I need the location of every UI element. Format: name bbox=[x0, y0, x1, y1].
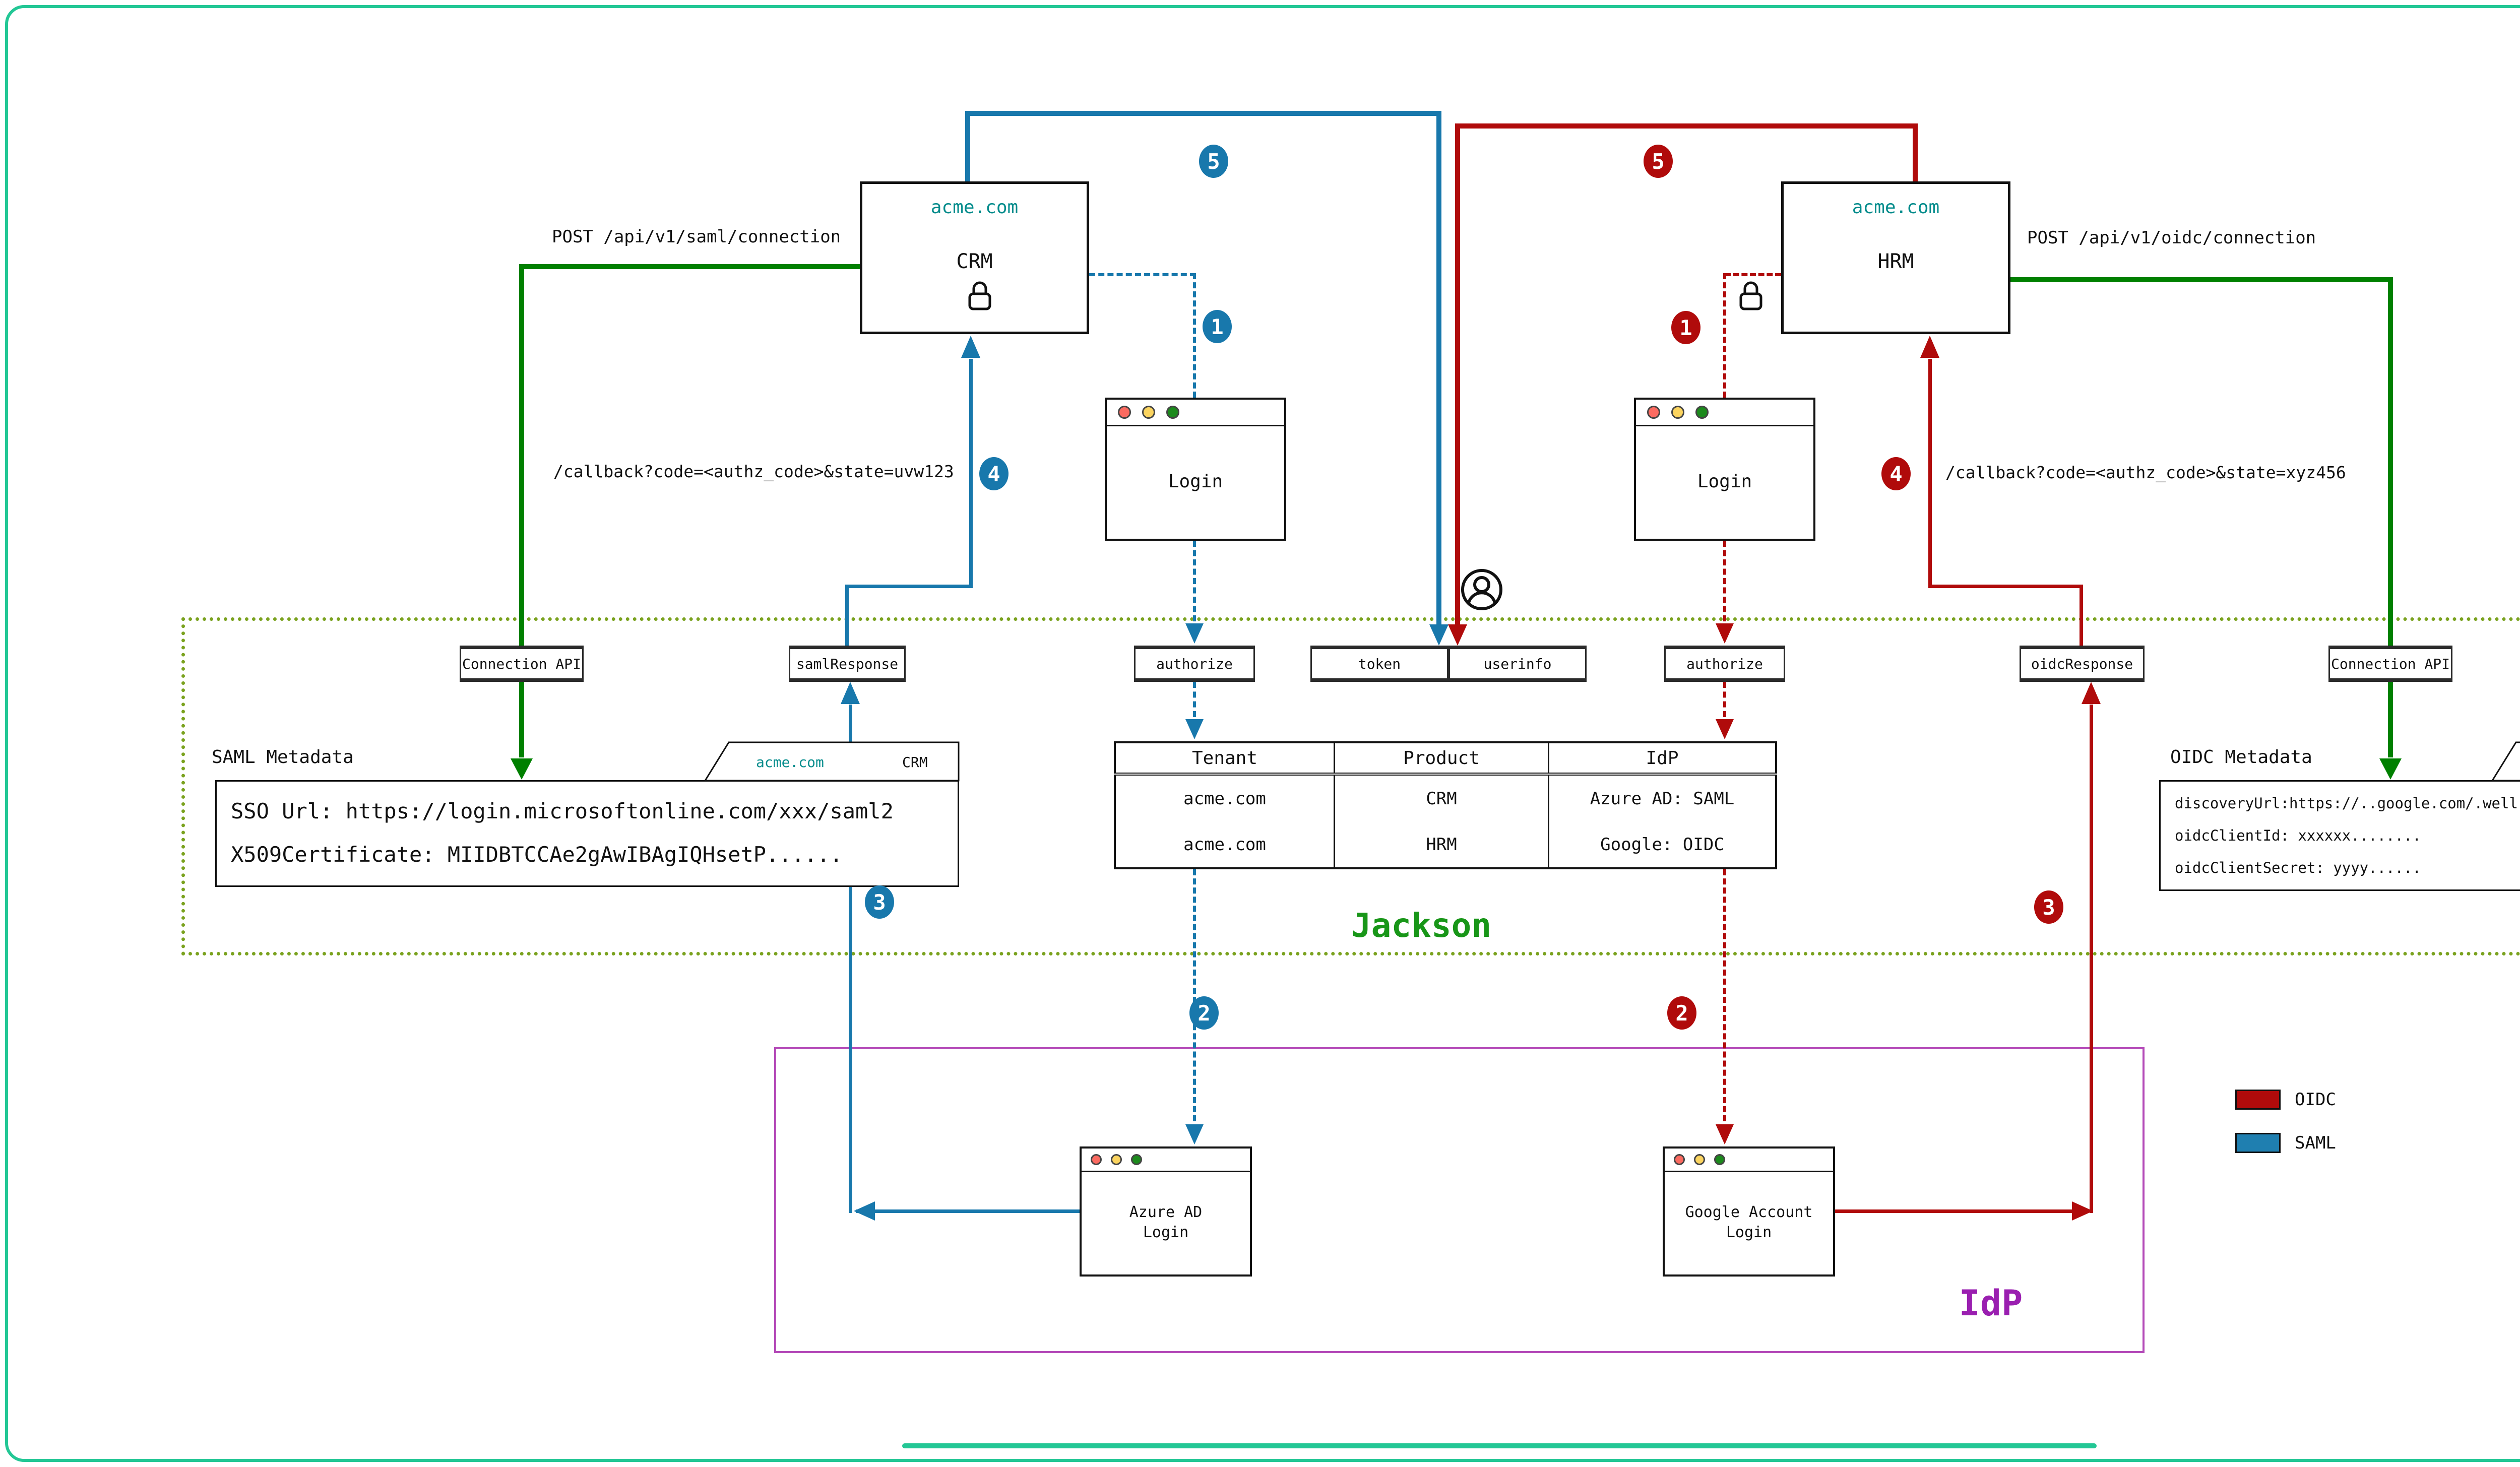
saml-dash-crm-h bbox=[1089, 273, 1196, 276]
oidc-step5-arrow bbox=[1448, 624, 1467, 646]
table-header-idp: IdP bbox=[1549, 742, 1777, 774]
saml-dash-arrow-azure bbox=[1185, 1124, 1204, 1144]
close-dot-icon[interactable] bbox=[1674, 1154, 1685, 1165]
saml-dash-arrow-table bbox=[1185, 719, 1204, 739]
endpoint-label: token bbox=[1358, 656, 1401, 672]
saml-dash-arrow-authorize bbox=[1185, 623, 1204, 644]
cell-idp: Azure AD: SAML bbox=[1549, 774, 1777, 822]
google-login-window: Google Account Login bbox=[1663, 1146, 1835, 1277]
endpoint-label: oidcResponse bbox=[2031, 656, 2133, 672]
oidc-step1-badge: 1 bbox=[1671, 311, 1700, 344]
saml-callback-label: /callback?code=<authz_code>&state=uvw123 bbox=[553, 462, 954, 481]
minimize-dot-icon[interactable] bbox=[1671, 406, 1684, 419]
oidc-discovery-url: discoveryUrl:https://..google.com/.well-… bbox=[2175, 795, 2520, 812]
maximize-dot-icon[interactable] bbox=[1714, 1154, 1725, 1165]
green-line-right-h bbox=[2010, 277, 2393, 282]
azure-label-line1: Azure AD bbox=[1129, 1202, 1203, 1223]
oidc-metadata-title: OIDC Metadata bbox=[2170, 747, 2312, 768]
saml-x509: X509Certificate: MIIDBTCCAe2gAwIBAgIQHse… bbox=[231, 842, 843, 867]
green-line-left-h bbox=[522, 264, 860, 269]
saml-step3-arrow-left bbox=[854, 1201, 875, 1221]
saml-step1-badge: 1 bbox=[1203, 310, 1232, 343]
endpoint-saml-response: samlResponse bbox=[789, 646, 906, 682]
oidc-dash-arrow-google bbox=[1716, 1124, 1734, 1144]
cell-tenant: acme.com bbox=[1115, 774, 1335, 822]
endpoint-token: token bbox=[1310, 646, 1448, 682]
saml-dash-authorize-table bbox=[1193, 682, 1196, 717]
window-titlebar bbox=[1082, 1149, 1250, 1172]
google-label-line2: Login bbox=[1726, 1223, 1772, 1243]
google-label-line1: Google Account bbox=[1685, 1202, 1813, 1223]
oidc-client-id: oidcClientId: xxxxxx........ bbox=[2175, 827, 2421, 844]
saml-step3-line-h bbox=[856, 1209, 1080, 1213]
green-line-right-v2 bbox=[2388, 682, 2393, 757]
saml-step5-arrow bbox=[1429, 624, 1448, 646]
endpoint-connection-api-right: Connection API bbox=[2328, 646, 2452, 682]
table-row: acme.com HRM Google: OIDC bbox=[1115, 822, 1776, 868]
oidc-step4-arrow-up bbox=[1920, 336, 1939, 358]
cell-product: HRM bbox=[1335, 822, 1549, 868]
oidc-dash-arrow-table bbox=[1716, 719, 1734, 739]
endpoint-label: userinfo bbox=[1484, 656, 1552, 672]
legend-oidc-swatch bbox=[2235, 1090, 2281, 1110]
saml-step3-badge: 3 bbox=[865, 885, 894, 919]
endpoint-label: Connection API bbox=[462, 656, 581, 672]
oidc-dash-authorize-table bbox=[1723, 682, 1726, 717]
saml-step5-line-v2 bbox=[1436, 111, 1441, 624]
saml-step4-badge: 4 bbox=[979, 457, 1009, 490]
cell-product: CRM bbox=[1335, 774, 1549, 822]
bottom-accent-bar bbox=[902, 1443, 2097, 1448]
saml-step5-badge: 5 bbox=[1199, 145, 1228, 178]
oidc-metadata-tab bbox=[2491, 741, 2520, 782]
endpoint-label: samlResponse bbox=[796, 656, 898, 672]
green-line-left-v1 bbox=[519, 264, 524, 646]
oidc-callback-label: /callback?code=<authz_code>&state=xyz456 bbox=[1945, 463, 2346, 482]
endpoint-connection-api-left: Connection API bbox=[460, 646, 584, 682]
oidc-step3-arrow-up bbox=[2082, 682, 2101, 704]
saml-metadata-box: SSO Url: https://login.microsoftonline.c… bbox=[215, 780, 959, 887]
maximize-dot-icon[interactable] bbox=[1131, 1154, 1142, 1165]
hrm-name: HRM bbox=[1784, 249, 2008, 273]
login-window-crm: Login bbox=[1105, 398, 1286, 541]
table-row: acme.com CRM Azure AD: SAML bbox=[1115, 774, 1776, 822]
saml-step4-arrow-up bbox=[961, 336, 980, 358]
jackson-label: Jackson bbox=[1331, 906, 1512, 945]
endpoint-authorize-right: authorize bbox=[1664, 646, 1785, 682]
saml-step4-line-v2 bbox=[969, 359, 973, 588]
endpoint-authorize-left: authorize bbox=[1134, 646, 1255, 682]
maximize-dot-icon[interactable] bbox=[1166, 406, 1179, 419]
window-titlebar bbox=[1636, 400, 1813, 426]
close-dot-icon[interactable] bbox=[1091, 1154, 1102, 1165]
oidc-step4-line-v2 bbox=[1928, 359, 1932, 588]
oidc-dash-arrow-authorize bbox=[1716, 623, 1734, 644]
post-saml-connection-label: POST /api/v1/saml/connection bbox=[552, 227, 841, 247]
oidc-step5-line-v1 bbox=[1913, 126, 1918, 181]
green-line-right-v1 bbox=[2388, 277, 2393, 646]
legend-saml-swatch bbox=[2235, 1133, 2281, 1153]
endpoint-oidc-response: oidcResponse bbox=[2020, 646, 2145, 682]
post-oidc-connection-label: POST /api/v1/oidc/connection bbox=[2027, 228, 2316, 248]
endpoint-label: authorize bbox=[1156, 656, 1233, 672]
crm-domain: acme.com bbox=[862, 197, 1087, 218]
oidc-step3-line-h bbox=[1835, 1209, 2072, 1213]
endpoint-label: Connection API bbox=[2331, 656, 2450, 672]
oidc-step5-line-v2 bbox=[1455, 123, 1460, 624]
lock-icon-hrm bbox=[1737, 279, 1765, 312]
cell-idp: Google: OIDC bbox=[1549, 822, 1777, 868]
oidc-dash-hrm-h bbox=[1725, 273, 1781, 276]
oidc-step4-badge: 4 bbox=[1881, 457, 1911, 490]
legend-saml-label: SAML bbox=[2295, 1133, 2336, 1153]
oidc-step3-line-v bbox=[2090, 705, 2093, 1213]
green-arrow-right-down bbox=[2379, 758, 2402, 780]
green-arrow-left-down bbox=[511, 758, 533, 780]
oidc-dash-login-authorize bbox=[1723, 541, 1726, 621]
endpoint-label: authorize bbox=[1686, 656, 1763, 672]
close-dot-icon[interactable] bbox=[1118, 406, 1131, 419]
saml-dash-table-azure bbox=[1193, 869, 1196, 1121]
login-window-hrm: Login bbox=[1634, 398, 1815, 541]
saml-step4-line-h bbox=[845, 585, 973, 588]
oidc-step3-badge: 3 bbox=[2034, 890, 2063, 924]
saml-step4-line-v1 bbox=[845, 587, 849, 646]
minimize-dot-icon[interactable] bbox=[1694, 1154, 1705, 1165]
hrm-app-box: acme.com HRM bbox=[1781, 181, 2010, 334]
table-header-product: Product bbox=[1335, 742, 1549, 774]
oidc-metadata-box: discoveryUrl:https://..google.com/.well-… bbox=[2159, 780, 2520, 891]
window-titlebar bbox=[1107, 400, 1284, 426]
hrm-domain: acme.com bbox=[1784, 197, 2008, 218]
azure-ad-login-window: Azure AD Login bbox=[1080, 1146, 1252, 1277]
saml-step5-line-v1 bbox=[965, 113, 970, 181]
oidc-step4-line-v1 bbox=[2080, 587, 2083, 646]
saml-dash-login-authorize bbox=[1193, 541, 1196, 621]
login-window-label: Login bbox=[1636, 425, 1813, 539]
maximize-dot-icon[interactable] bbox=[1695, 406, 1709, 419]
oidc-client-secret: oidcClientSecret: yyyy...... bbox=[2175, 859, 2421, 876]
saml-step2-badge: 2 bbox=[1189, 996, 1219, 1030]
azure-label-line2: Login bbox=[1143, 1223, 1188, 1243]
login-window-label: Login bbox=[1107, 425, 1284, 539]
oidc-step2-badge: 2 bbox=[1667, 996, 1696, 1030]
oidc-step5-badge: 5 bbox=[1644, 145, 1673, 178]
table-header-tenant: Tenant bbox=[1115, 742, 1335, 774]
idp-label: IdP bbox=[1935, 1283, 2046, 1324]
window-titlebar bbox=[1665, 1149, 1833, 1172]
crm-name: CRM bbox=[862, 249, 1087, 273]
saml-step5-line-h bbox=[965, 111, 1441, 116]
oidc-dash-hrm-v bbox=[1723, 273, 1726, 398]
saml-sso-url: SSO Url: https://login.microsoftonline.c… bbox=[231, 799, 894, 823]
saml-dash-crm-v bbox=[1193, 273, 1196, 398]
google-window-label: Google Account Login bbox=[1665, 1171, 1833, 1274]
saml-metadata-title: SAML Metadata bbox=[212, 747, 354, 768]
lock-icon-crm bbox=[966, 279, 994, 312]
endpoint-userinfo: userinfo bbox=[1448, 646, 1587, 682]
saml-step3-arrow-up bbox=[841, 682, 860, 704]
minimize-dot-icon[interactable] bbox=[1111, 1154, 1122, 1165]
minimize-dot-icon[interactable] bbox=[1142, 406, 1155, 419]
user-icon bbox=[1460, 567, 1504, 612]
cell-tenant: acme.com bbox=[1115, 822, 1335, 868]
tenant-connections-table: Tenant Product IdP acme.com CRM Azure AD… bbox=[1114, 741, 1777, 869]
saml-tab-domain: acme.com bbox=[756, 754, 824, 771]
close-dot-icon[interactable] bbox=[1647, 406, 1660, 419]
oidc-step5-line-h bbox=[1455, 123, 1918, 129]
azure-window-label: Azure AD Login bbox=[1082, 1171, 1250, 1274]
saml-tab-product: CRM bbox=[902, 754, 928, 771]
legend-oidc-label: OIDC bbox=[2295, 1090, 2336, 1110]
oidc-dash-table-google bbox=[1723, 869, 1726, 1121]
green-line-left-v2 bbox=[519, 682, 524, 757]
oidc-step4-line-h bbox=[1928, 585, 2083, 588]
